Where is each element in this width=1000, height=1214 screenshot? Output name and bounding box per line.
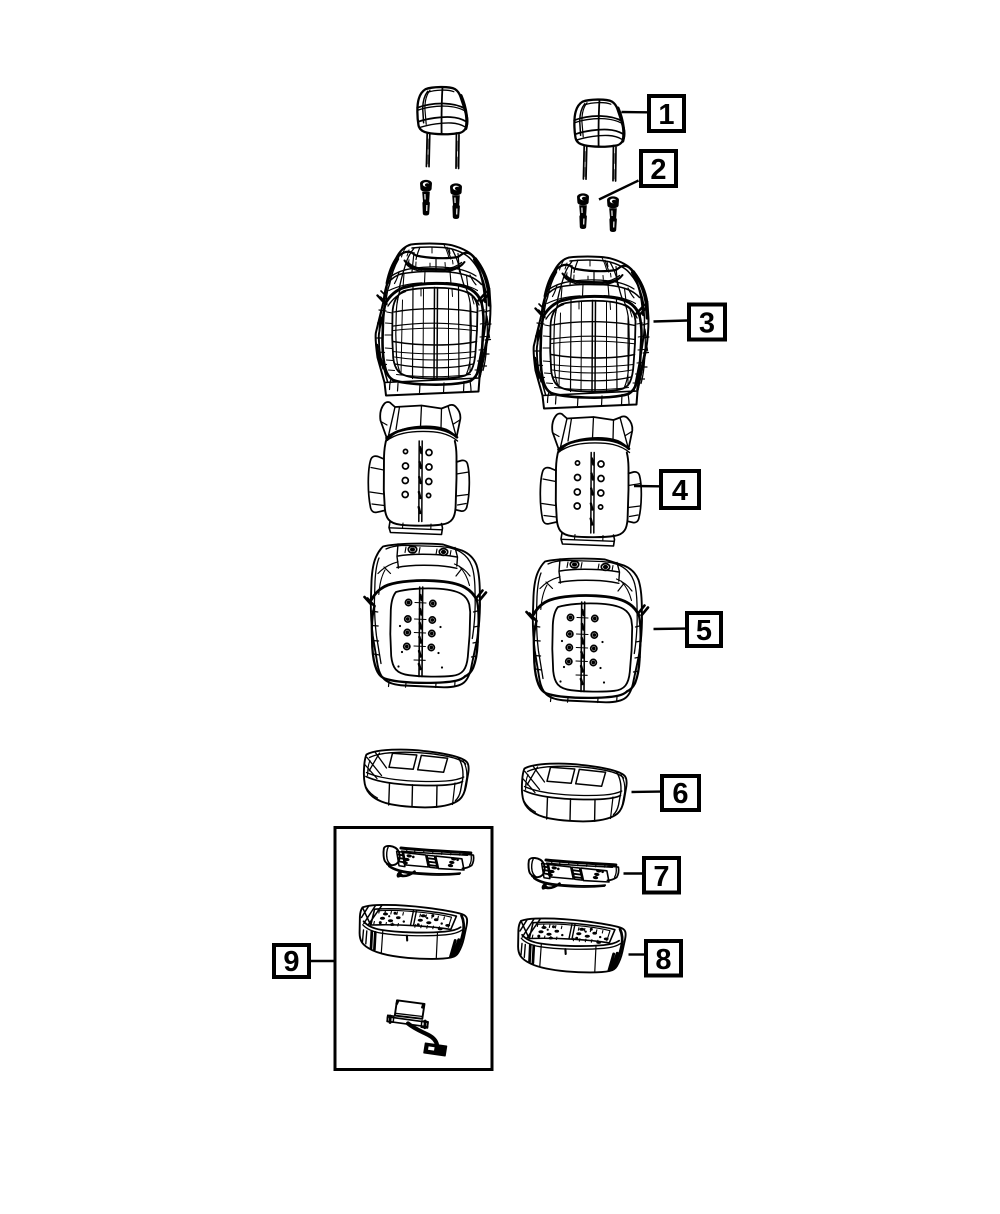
svg-text:5: 5 — [696, 615, 712, 647]
svg-text:9: 9 — [283, 946, 299, 978]
svg-text:4: 4 — [672, 475, 688, 507]
svg-text:3: 3 — [699, 308, 715, 340]
svg-text:1: 1 — [658, 99, 674, 131]
svg-text:2: 2 — [650, 154, 666, 186]
svg-text:8: 8 — [655, 944, 671, 976]
svg-text:7: 7 — [653, 861, 669, 893]
svg-text:6: 6 — [672, 778, 688, 810]
